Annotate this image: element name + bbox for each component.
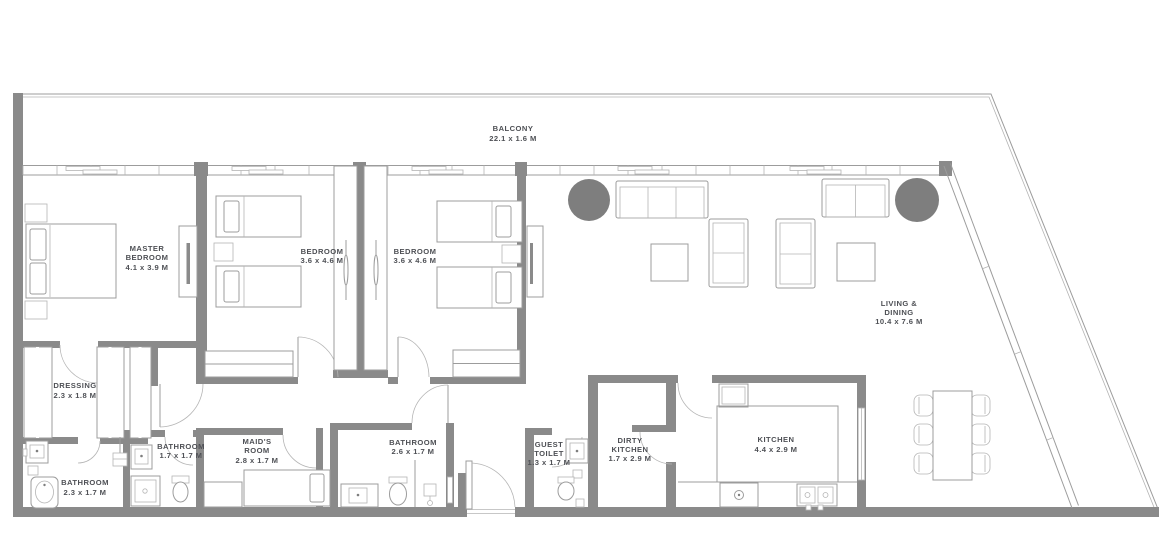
sink-icon [131,445,152,469]
room-dims-bedroom3: 3.6 x 4.6 M [394,256,437,265]
room-labels: BALCONY 22.1 x 1.6 M MASTER BEDROOM 4.1 … [53,124,922,497]
room-label-guest-toilet: GUEST [535,440,563,449]
shower-icon [131,476,160,506]
room-label-bath-mid: BATHROOM [389,438,437,447]
maids-bed-icon [244,470,330,506]
round-rug-icon [568,179,610,221]
room-label-maids: MAID'S [243,437,272,446]
dining-set-icon [914,391,990,480]
room-label-balcony: BALCONY [493,124,534,133]
stove-icon [720,483,758,507]
bedroom3-beds-icon [437,201,522,308]
room-dims-guest-toilet: 1.3 x 1.7 M [528,458,571,467]
side-table-icon [837,243,875,281]
bathtub-icon [31,477,58,508]
sofa-icon [616,181,708,218]
round-rug-icon [895,178,939,222]
living-tv-unit-icon [527,226,543,297]
toilet-icon [558,477,574,500]
room-label-bedroom2: BEDROOM [301,247,344,256]
room-label-bedroom3: BEDROOM [394,247,437,256]
floor-plan-page: BALCONY 22.1 x 1.6 M MASTER BEDROOM 4.1 … [0,0,1174,558]
room-label-master: MASTER [130,244,165,253]
room-dims-maids: 2.8 x 1.7 M [236,456,279,465]
master-bathroom-fixtures [23,441,58,508]
room-dims-bedroom2: 3.6 x 4.6 M [301,256,344,265]
room-dims-dressing: 2.3 x 1.8 M [54,391,97,400]
room-dims-living: 10.4 x 7.6 M [875,317,923,326]
bedroom2-beds-icon [214,196,301,307]
toilet-icon [389,477,407,505]
room-label-bath-master: BATHROOM [61,478,109,487]
room-label-dressing: DRESSING [53,381,96,390]
room-label-master-2: BEDROOM [126,253,169,262]
kitchen-sink-icon [797,484,837,510]
entrance-door [466,461,515,514]
master-tv-unit-icon [179,226,197,297]
fridge-icon [719,384,748,407]
room-label-living-2: DINING [884,308,913,317]
room-label-bath-small: BATHROOM [157,442,205,451]
room-dims-balcony: 22.1 x 1.6 M [489,134,537,143]
sliding-window-icon [66,167,841,175]
room-label-kitchen: KITCHEN [758,435,795,444]
room-dims-bath-master: 2.3 x 1.7 M [64,488,107,497]
room-dims-bath-small: 1.7 x 1.7 M [160,451,203,460]
sink-icon [341,484,378,507]
room-label-guest-toilet-2: TOILET [534,449,564,458]
floor-plan: BALCONY 22.1 x 1.6 M MASTER BEDROOM 4.1 … [0,0,1174,558]
armchair-icon [776,219,815,288]
shower-icon [424,484,436,506]
mid-bathroom-fixtures [341,460,436,507]
loveseat-icon [822,179,889,217]
room-label-living: LIVING & [881,299,918,308]
room-dims-bath-mid: 2.6 x 1.7 M [392,447,435,456]
master-bed-icon [25,204,116,319]
room-dims-dirty-kitchen: 1.7 x 2.9 M [609,454,652,463]
toilet-icon [172,476,189,502]
coffee-table-icon [651,244,688,281]
room-label-dirty-kitchen: DIRTY [617,436,642,445]
counter-outline [717,406,838,482]
sink-icon [23,441,48,463]
room-label-maids-2: ROOM [244,446,269,455]
drain-icon [28,466,38,475]
room-label-dirty-kitchen-2: KITCHEN [612,445,649,454]
room-dims-kitchen: 4.4 x 2.9 M [755,445,798,454]
armchair-icon [709,219,748,287]
room-dims-master: 4.1 x 3.9 M [126,263,169,272]
